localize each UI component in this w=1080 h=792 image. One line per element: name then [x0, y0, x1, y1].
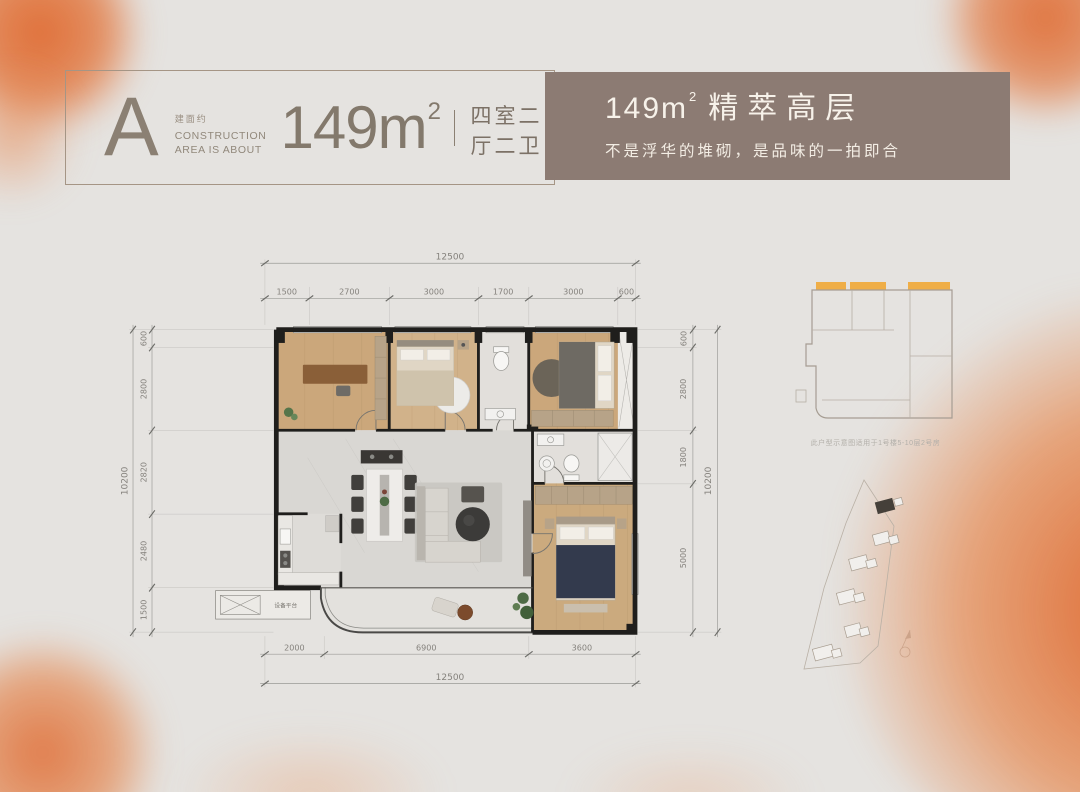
banner-headline: 精萃高层 [708, 92, 864, 127]
site-plan-svg [790, 468, 990, 703]
dim-top-seg: 2700 [339, 288, 359, 297]
dim-bottom-seg: 2000 [284, 643, 304, 652]
equipment-platform-label: 设备平台 [274, 602, 297, 610]
orange-blob-bottom-center-left [175, 728, 445, 792]
area-about-block: 建面约 CONSTRUCTION AREA IS ABOUT [175, 112, 267, 157]
highlighted-building [875, 498, 895, 514]
dim-top-seg: 600 [619, 288, 634, 297]
dim-bottom-seg: 3600 [572, 643, 592, 652]
dimensions-right: 600 2800 1800 5000 10200 [638, 325, 722, 637]
compass-icon [900, 630, 911, 657]
dim-left-seg: 2480 [139, 541, 148, 561]
area-value: 149m 2 [280, 98, 439, 158]
banner-area-sup: 2 [689, 90, 698, 105]
dimensions-top: 12500 1500 2700 3000 1700 3000 600 [260, 252, 641, 324]
schematic-partitions [796, 290, 952, 418]
dim-right-seg: 2800 [679, 379, 688, 399]
floorplan-svg: 设备平台 12500 1500 2700 3000 1700 3000 600 … [89, 249, 754, 695]
dim-top-seg: 1700 [493, 288, 513, 297]
schematic-note: 此户型示意图适用于1号楼5-10层2号房 [783, 438, 968, 448]
dim-right-seg: 1800 [679, 447, 688, 467]
header-divider [454, 110, 455, 146]
schematic-highlight-bars [816, 282, 950, 290]
banner-title: 149m 2 精萃高层 [605, 92, 1010, 127]
orange-blob-bottom-center [565, 742, 815, 792]
site-plan [790, 468, 990, 703]
area-about-en-line1: CONSTRUCTION [175, 129, 267, 143]
schematic-outline [806, 290, 952, 418]
dim-right-seg: 5000 [679, 548, 688, 568]
area-sup: 2 [428, 100, 440, 124]
dim-left-seg: 2820 [139, 462, 148, 482]
dim-right-total: 10200 [704, 466, 714, 495]
poster-canvas: A 建面约 CONSTRUCTION AREA IS ABOUT 149m 2 … [0, 0, 1080, 792]
dim-left-seg: 1500 [139, 600, 148, 620]
equipment-platform: 设备平台 [216, 591, 311, 619]
dim-left-seg: 600 [139, 331, 148, 346]
headline-banner: 149m 2 精萃高层 不是浮华的堆砌，是品味的一拍即合 [545, 72, 1010, 180]
unit-header-box: A 建面约 CONSTRUCTION AREA IS ABOUT 149m 2 … [65, 70, 555, 185]
dim-top-seg: 3000 [563, 288, 583, 297]
dim-top-seg: 1500 [277, 288, 297, 297]
area-about-en-line2: AREA IS ABOUT [175, 143, 267, 157]
dim-left-total: 10200 [120, 466, 130, 495]
dim-top-seg: 3000 [424, 288, 444, 297]
dimensions-bottom: 2000 6900 3600 12500 [260, 636, 641, 687]
dim-right-seg: 600 [679, 331, 688, 346]
room-layout-label: 四室二厅二卫 [471, 100, 554, 160]
area-number: 149m [280, 98, 426, 158]
unit-type-letter: A [104, 86, 159, 170]
unit-schematic [782, 266, 972, 438]
dim-top-total: 12500 [436, 252, 465, 262]
banner-subtitle: 不是浮华的堆砌，是品味的一拍即合 [605, 139, 1010, 161]
dim-bottom-total: 12500 [436, 673, 465, 683]
dim-bottom-seg: 6900 [416, 643, 436, 652]
area-about-cn: 建面约 [175, 112, 267, 125]
unit-schematic-svg [782, 266, 972, 438]
floorplan-area: 设备平台 12500 1500 2700 3000 1700 3000 600 … [89, 249, 754, 695]
banner-area-number: 149m [605, 92, 688, 127]
area-about-en: CONSTRUCTION AREA IS ABOUT [175, 129, 267, 157]
dim-left-seg: 2800 [139, 379, 148, 399]
